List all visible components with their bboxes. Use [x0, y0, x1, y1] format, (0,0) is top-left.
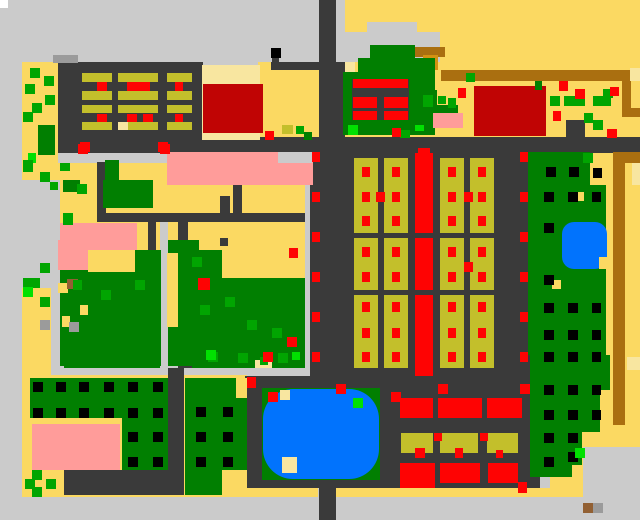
map-rect — [282, 457, 297, 473]
pink-building-south — [32, 424, 120, 470]
map-rect — [520, 232, 528, 242]
map-rect — [296, 126, 304, 134]
map-rect — [438, 384, 448, 394]
map-rect — [101, 290, 111, 300]
map-rect — [272, 328, 282, 338]
map-rect — [632, 163, 640, 185]
map-rect — [223, 432, 233, 442]
map-rect — [440, 463, 480, 483]
map-rect — [51, 180, 60, 374]
map-rect — [568, 192, 578, 202]
red-strip — [415, 153, 433, 233]
map-rect — [200, 305, 210, 315]
map-rect — [478, 272, 486, 282]
map-rect — [384, 238, 408, 290]
map-rect — [544, 303, 554, 313]
map-rect — [434, 433, 442, 441]
map-rect — [196, 457, 206, 467]
map-rect — [392, 352, 400, 362]
pink-kiosk — [433, 113, 463, 128]
red-building-west — [203, 84, 263, 133]
map-rect — [77, 184, 87, 194]
map-rect — [192, 257, 202, 267]
map-rect — [520, 312, 528, 322]
map-rect — [358, 58, 435, 74]
map-rect — [455, 448, 463, 458]
map-rect — [78, 144, 88, 154]
white-corner-tile — [0, 0, 8, 8]
map-rect — [622, 81, 631, 109]
map-rect — [312, 272, 320, 282]
map-rect — [478, 167, 486, 177]
map-rect — [25, 84, 35, 94]
map-rect — [82, 105, 112, 113]
map-rect — [568, 433, 578, 443]
map-rect — [79, 382, 89, 392]
map-rect — [128, 382, 138, 392]
map-rect — [384, 97, 408, 108]
map-rect — [568, 303, 578, 313]
map-rect — [153, 432, 163, 442]
map-rect — [160, 144, 170, 154]
map-rect — [82, 122, 112, 130]
map-rect — [73, 280, 82, 290]
game-map[interactable] — [0, 0, 640, 520]
map-rect — [353, 111, 377, 120]
map-rect — [496, 450, 503, 458]
map-rect — [312, 192, 320, 202]
map-rect — [268, 392, 278, 402]
map-rect — [568, 410, 578, 420]
map-rect — [520, 152, 528, 162]
map-rect — [135, 280, 145, 290]
map-rect — [592, 410, 601, 420]
orchard — [30, 378, 168, 418]
map-rect — [128, 457, 138, 467]
map-rect — [104, 408, 114, 418]
map-rect — [592, 385, 601, 395]
map-rect — [58, 240, 88, 270]
map-rect — [438, 96, 446, 104]
map-rect — [362, 272, 370, 282]
map-rect — [247, 377, 256, 388]
map-rect — [353, 97, 377, 108]
map-rect — [592, 303, 601, 313]
map-rect — [32, 103, 42, 113]
map-rect — [220, 238, 228, 246]
map-rect — [220, 196, 230, 222]
map-rect — [118, 105, 158, 113]
map-rect — [312, 232, 320, 242]
map-rect — [544, 223, 554, 233]
map-rect — [610, 87, 619, 96]
map-rect — [488, 463, 518, 483]
map-rect — [53, 55, 78, 63]
map-rect — [198, 278, 210, 290]
map-rect — [458, 88, 466, 98]
map-rect — [448, 352, 456, 362]
map-rect — [168, 240, 199, 250]
map-rect — [415, 125, 424, 131]
map-rect — [520, 192, 528, 202]
map-rect — [23, 287, 33, 297]
map-rect — [367, 22, 417, 34]
map-rect — [566, 120, 585, 138]
map-rect — [392, 128, 401, 137]
map-rect — [118, 73, 158, 82]
map-rect — [440, 238, 464, 290]
map-rect — [544, 192, 554, 202]
map-rect — [40, 320, 50, 330]
map-rect — [69, 322, 79, 332]
red-building-east — [474, 86, 546, 136]
map-rect — [289, 248, 298, 258]
map-rect — [167, 73, 192, 82]
map-rect — [392, 216, 400, 226]
map-rect — [40, 297, 50, 307]
map-rect — [56, 382, 66, 392]
map-rect — [353, 398, 363, 408]
map-rect — [353, 79, 408, 88]
map-rect — [265, 131, 274, 140]
map-rect — [23, 160, 33, 172]
map-rect — [575, 448, 585, 458]
map-rect — [480, 433, 488, 441]
map-rect — [282, 125, 293, 134]
screenshot-stage — [0, 0, 640, 520]
map-rect — [478, 302, 486, 312]
map-rect — [236, 378, 247, 398]
wall-east — [613, 152, 625, 425]
map-rect — [607, 129, 617, 138]
map-rect — [392, 302, 400, 312]
main-road-horizontal — [58, 137, 640, 153]
map-rect — [104, 382, 114, 392]
map-rect — [478, 352, 486, 362]
map-rect — [448, 167, 456, 177]
map-rect — [553, 111, 561, 121]
map-rect — [384, 111, 408, 120]
map-rect — [362, 302, 370, 312]
map-rect — [415, 238, 433, 290]
map-rect — [559, 81, 568, 91]
map-rect — [128, 432, 138, 442]
map-rect — [438, 398, 482, 418]
map-rect — [271, 62, 345, 70]
map-rect — [38, 125, 55, 155]
map-rect — [23, 112, 33, 122]
map-rect — [593, 168, 602, 178]
map-rect — [50, 182, 58, 190]
map-rect — [392, 328, 400, 338]
map-rect — [415, 295, 433, 376]
map-rect — [167, 91, 192, 100]
map-rect — [348, 125, 358, 135]
map-rect — [593, 120, 603, 130]
map-rect — [206, 350, 216, 360]
map-rect — [362, 328, 370, 338]
map-rect — [271, 48, 281, 58]
map-rect — [196, 407, 206, 417]
map-rect — [583, 447, 640, 499]
map-rect — [400, 398, 433, 418]
map-rect — [196, 432, 206, 442]
map-rect — [627, 357, 640, 370]
map-rect — [418, 148, 430, 154]
map-rect — [33, 382, 43, 392]
map-rect — [292, 352, 300, 360]
map-rect — [391, 392, 401, 402]
map-rect — [238, 353, 248, 363]
map-rect — [583, 153, 593, 163]
map-rect — [362, 167, 370, 177]
map-rect — [40, 172, 50, 182]
map-rect — [544, 275, 554, 285]
map-rect — [79, 408, 89, 418]
map-rect — [392, 247, 400, 257]
map-rect — [592, 352, 601, 362]
map-rect — [272, 58, 279, 64]
map-rect — [143, 114, 153, 122]
map-rect — [362, 216, 370, 226]
map-rect — [544, 352, 554, 362]
map-rect — [544, 385, 554, 395]
map-rect — [370, 45, 415, 59]
map-rect — [97, 82, 107, 91]
map-rect — [278, 152, 312, 163]
map-rect — [569, 167, 579, 177]
map-rect — [97, 213, 305, 222]
map-rect — [415, 448, 425, 458]
map-rect — [175, 114, 183, 122]
map-rect — [167, 122, 192, 130]
map-rect — [223, 407, 233, 417]
map-rect — [118, 122, 128, 130]
map-rect — [64, 348, 160, 368]
map-rect — [312, 312, 320, 322]
map-rect — [599, 257, 608, 269]
map-rect — [478, 328, 486, 338]
map-rect — [46, 479, 56, 489]
map-rect — [336, 384, 346, 394]
map-rect — [225, 297, 235, 307]
map-rect — [550, 96, 560, 106]
map-rect — [583, 503, 593, 513]
map-rect — [592, 330, 601, 340]
map-rect — [544, 457, 554, 467]
map-rect — [448, 328, 456, 338]
map-rect — [593, 503, 603, 513]
map-rect — [448, 247, 456, 257]
map-rect — [530, 390, 600, 432]
map-rect — [287, 337, 297, 347]
map-rect — [30, 68, 40, 78]
map-rect — [478, 216, 486, 226]
map-rect — [470, 238, 494, 290]
map-rect — [127, 114, 137, 122]
map-rect — [448, 216, 456, 226]
map-rect — [478, 192, 486, 202]
map-rect — [45, 95, 55, 105]
map-rect — [153, 408, 163, 418]
map-rect — [354, 238, 378, 290]
map-rect — [88, 250, 135, 272]
map-rect — [312, 152, 320, 162]
map-rect — [345, 62, 355, 72]
map-rect — [82, 73, 112, 82]
map-rect — [167, 253, 178, 327]
map-rect — [82, 91, 112, 100]
map-rect — [544, 330, 554, 340]
map-rect — [568, 385, 578, 395]
map-rect — [263, 352, 273, 362]
map-rect — [223, 457, 233, 467]
map-rect — [520, 352, 528, 362]
map-rect — [487, 398, 522, 418]
map-rect — [33, 408, 43, 418]
map-rect — [222, 470, 247, 495]
map-rect — [32, 487, 42, 497]
map-rect — [423, 95, 433, 107]
map-rect — [167, 105, 192, 113]
map-rect — [546, 167, 556, 177]
map-rect — [80, 305, 88, 315]
map-rect — [247, 320, 257, 330]
map-rect — [382, 48, 390, 55]
map-rect — [630, 68, 640, 81]
map-rect — [97, 114, 107, 122]
map-rect — [400, 463, 435, 488]
map-rect — [448, 302, 456, 312]
map-rect — [464, 192, 473, 202]
map-rect — [153, 457, 163, 467]
map-rect — [392, 167, 400, 177]
map-rect — [592, 192, 601, 202]
map-rect — [400, 130, 410, 138]
map-rect — [520, 384, 530, 394]
map-rect — [448, 192, 456, 202]
map-rect — [40, 263, 50, 273]
map-rect — [278, 353, 288, 363]
map-rect — [568, 352, 578, 362]
map-rect — [518, 482, 527, 493]
map-rect — [304, 132, 312, 140]
map-rect — [392, 272, 400, 282]
map-rect — [622, 108, 640, 117]
map-rect — [448, 272, 456, 282]
map-rect — [464, 262, 473, 272]
map-rect — [376, 192, 385, 202]
map-rect — [312, 352, 320, 362]
map-rect — [153, 382, 163, 392]
map-rect — [575, 89, 585, 99]
map-rect — [44, 76, 54, 86]
map-rect — [362, 352, 370, 362]
map-rect — [478, 247, 486, 257]
map-rect — [544, 410, 554, 420]
map-rect — [175, 82, 183, 91]
map-rect — [520, 272, 528, 282]
map-rect — [118, 91, 158, 100]
map-rect — [535, 81, 542, 90]
map-rect — [528, 152, 590, 185]
map-rect — [466, 73, 475, 82]
south-road — [64, 470, 184, 495]
map-rect — [448, 98, 456, 108]
map-rect — [127, 82, 150, 91]
map-rect — [392, 192, 400, 202]
map-rect — [128, 408, 138, 418]
map-rect — [233, 185, 242, 213]
map-rect — [103, 180, 153, 208]
map-rect — [584, 113, 593, 123]
map-rect — [362, 192, 370, 202]
map-rect — [362, 247, 370, 257]
map-rect — [60, 163, 70, 171]
map-rect — [56, 408, 66, 418]
map-rect — [63, 213, 73, 225]
map-rect — [568, 330, 578, 340]
map-rect — [544, 433, 554, 443]
map-rect — [280, 390, 290, 400]
